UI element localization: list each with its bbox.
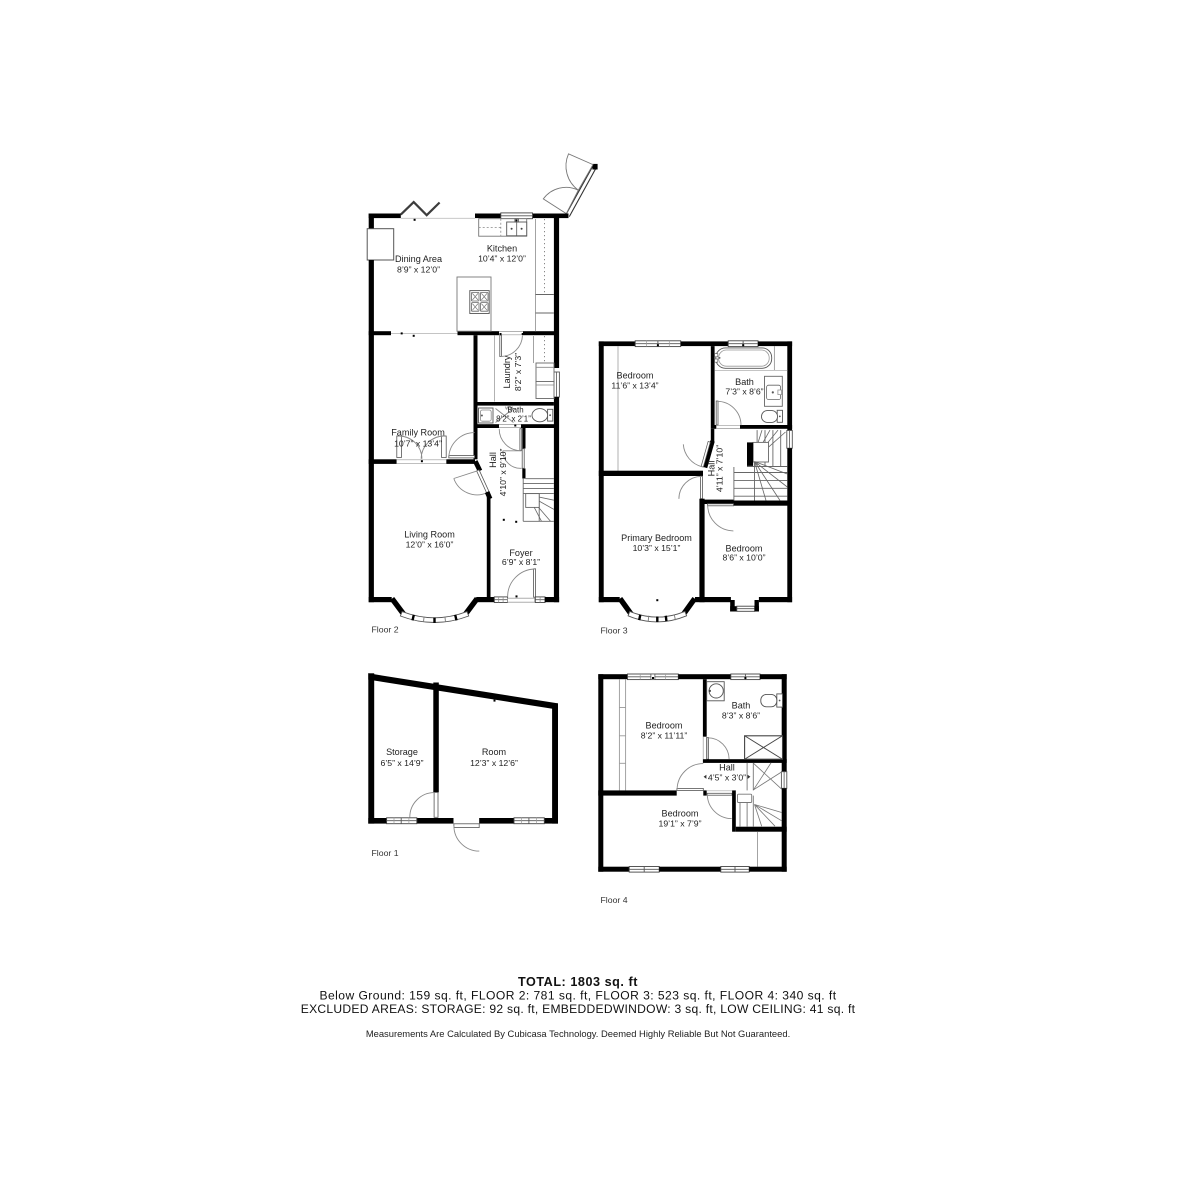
svg-text:Floor 1: Floor 1: [372, 848, 399, 858]
svg-text:10’7” x 13’4”: 10’7” x 13’4”: [394, 439, 442, 449]
svg-text:Floor 4: Floor 4: [601, 895, 628, 905]
svg-text:7’3” x 8’6”: 7’3” x 8’6”: [725, 387, 763, 397]
svg-text:11’6” x 13’4”: 11’6” x 13’4”: [611, 381, 658, 391]
svg-text:Dining Area: Dining Area: [395, 254, 443, 264]
svg-text:8’2” x 11’11”: 8’2” x 11’11”: [641, 731, 688, 741]
svg-text:8’6” x 10’0”: 8’6” x 10’0”: [723, 553, 766, 563]
svg-text:TOTAL: 1803 sq. ft: TOTAL: 1803 sq. ft: [518, 975, 638, 989]
svg-text:8’9” x 12’0”: 8’9” x 12’0”: [397, 265, 440, 275]
svg-text:Bedroom: Bedroom: [646, 721, 683, 731]
svg-text:Bath: Bath: [735, 377, 754, 387]
svg-text:Hall: Hall: [719, 763, 735, 773]
svg-text:EXCLUDED AREAS: STORAGE: 92 sq: EXCLUDED AREAS: STORAGE: 92 sq. ft, EMBE…: [301, 1002, 856, 1016]
svg-text:Floor 2: Floor 2: [372, 625, 399, 635]
svg-text:8’2” x 7’3”: 8’2” x 7’3”: [513, 353, 523, 391]
svg-text:Primary Bedroom: Primary Bedroom: [621, 533, 692, 543]
svg-text:Kitchen: Kitchen: [487, 244, 517, 254]
svg-text:10’3” x 15’1”: 10’3” x 15’1”: [633, 543, 681, 553]
svg-text:4’11” x 7’10”: 4’11” x 7’10”: [715, 445, 725, 492]
svg-text:6’5” x 14’9”: 6’5” x 14’9”: [381, 758, 424, 768]
svg-text:Bath: Bath: [507, 406, 523, 415]
svg-text:8’3” x 8’6”: 8’3” x 8’6”: [722, 711, 760, 721]
svg-text:Floor 3: Floor 3: [601, 626, 628, 636]
svg-text:Measurements Are Calculated By: Measurements Are Calculated By Cubicasa …: [366, 1028, 790, 1039]
svg-text:Storage: Storage: [386, 747, 418, 757]
svg-text:8’2” x 2’1”: 8’2” x 2’1”: [496, 415, 531, 424]
svg-text:Hall: Hall: [488, 452, 498, 468]
svg-text:Bath: Bath: [732, 701, 751, 711]
svg-text:Below Ground: 159 sq. ft, FLOO: Below Ground: 159 sq. ft, FLOOR 2: 781 s…: [319, 989, 836, 1003]
svg-text:Bedroom: Bedroom: [617, 371, 654, 381]
svg-text:Room: Room: [482, 747, 506, 757]
svg-text:Laundry: Laundry: [502, 355, 512, 388]
svg-text:Living Room: Living Room: [404, 530, 455, 540]
svg-text:4’10” x 9’10”: 4’10” x 9’10”: [498, 448, 508, 496]
svg-text:19’1” x 7’9”: 19’1” x 7’9”: [659, 819, 702, 829]
svg-text:Bedroom: Bedroom: [662, 809, 699, 819]
svg-text:12’0” x 16’0”: 12’0” x 16’0”: [406, 540, 454, 550]
svg-text:4’5” x 3’0”: 4’5” x 3’0”: [708, 773, 746, 783]
svg-text:Family Room: Family Room: [391, 428, 445, 438]
svg-text:12’3” x 12’6”: 12’3” x 12’6”: [470, 758, 518, 768]
svg-text:6’9” x 8’1”: 6’9” x 8’1”: [502, 557, 540, 567]
svg-text:10’4” x 12’0”: 10’4” x 12’0”: [478, 254, 526, 264]
